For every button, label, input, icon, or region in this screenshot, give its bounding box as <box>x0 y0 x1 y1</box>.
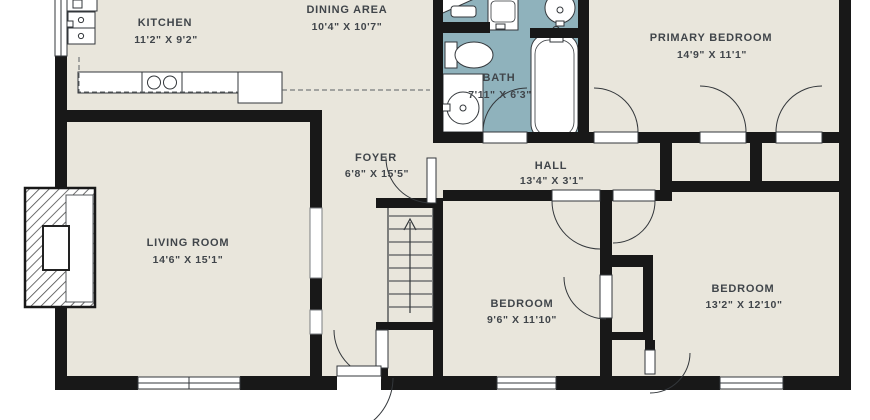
dining-label: DINING AREA <box>306 4 387 16</box>
living-room-window <box>138 377 240 389</box>
foyer-label: FOYER <box>355 152 397 164</box>
kitchen-cabinet <box>66 0 97 11</box>
living-room-label: LIVING ROOM <box>147 237 230 249</box>
kitchen-dims: 11'2" X 9'2" <box>134 34 198 46</box>
living-opening <box>310 208 322 278</box>
bedroom-mid-label: BEDROOM <box>490 298 553 310</box>
entry-opening <box>310 310 322 334</box>
bath-dims: 7'11" X 6'3" <box>468 89 532 101</box>
bedroom-right-window <box>720 377 783 389</box>
bedroom-mid-window <box>497 377 556 389</box>
vanity-round-sink <box>441 74 483 132</box>
bedroom-right-dims: 13'2" X 12'10" <box>705 299 782 311</box>
toilet-top <box>451 6 476 17</box>
living-room-dims: 14'6" X 15'1" <box>153 254 224 266</box>
kitchen-window <box>55 0 67 56</box>
floor-plan: KITCHEN 11'2" X 9'2" DINING AREA 10'4" X… <box>0 0 870 420</box>
hall-dims: 13'4" X 3'1" <box>520 175 584 187</box>
bedroom-mid-dims: 9'6" X 11'10" <box>487 314 557 326</box>
fireplace <box>25 188 95 307</box>
bedroom-right-label: BEDROOM <box>711 283 774 295</box>
bath-label: BATH <box>483 72 516 84</box>
dining-dims: 10'4" X 10'7" <box>312 21 383 33</box>
bathtub <box>531 27 578 141</box>
floor-plan-page: KITCHEN 11'2" X 9'2" DINING AREA 10'4" X… <box>0 0 870 420</box>
toilet <box>445 42 493 68</box>
primary-bedroom-label: PRIMARY BEDROOM <box>650 32 773 44</box>
hall-label: HALL <box>535 160 568 172</box>
washer <box>488 0 518 30</box>
primary-bedroom-dims: 14'9" X 11'1" <box>677 49 747 61</box>
foyer-dims: 6'8" X 15'5" <box>345 168 409 180</box>
kitchen-label: KITCHEN <box>138 17 193 29</box>
